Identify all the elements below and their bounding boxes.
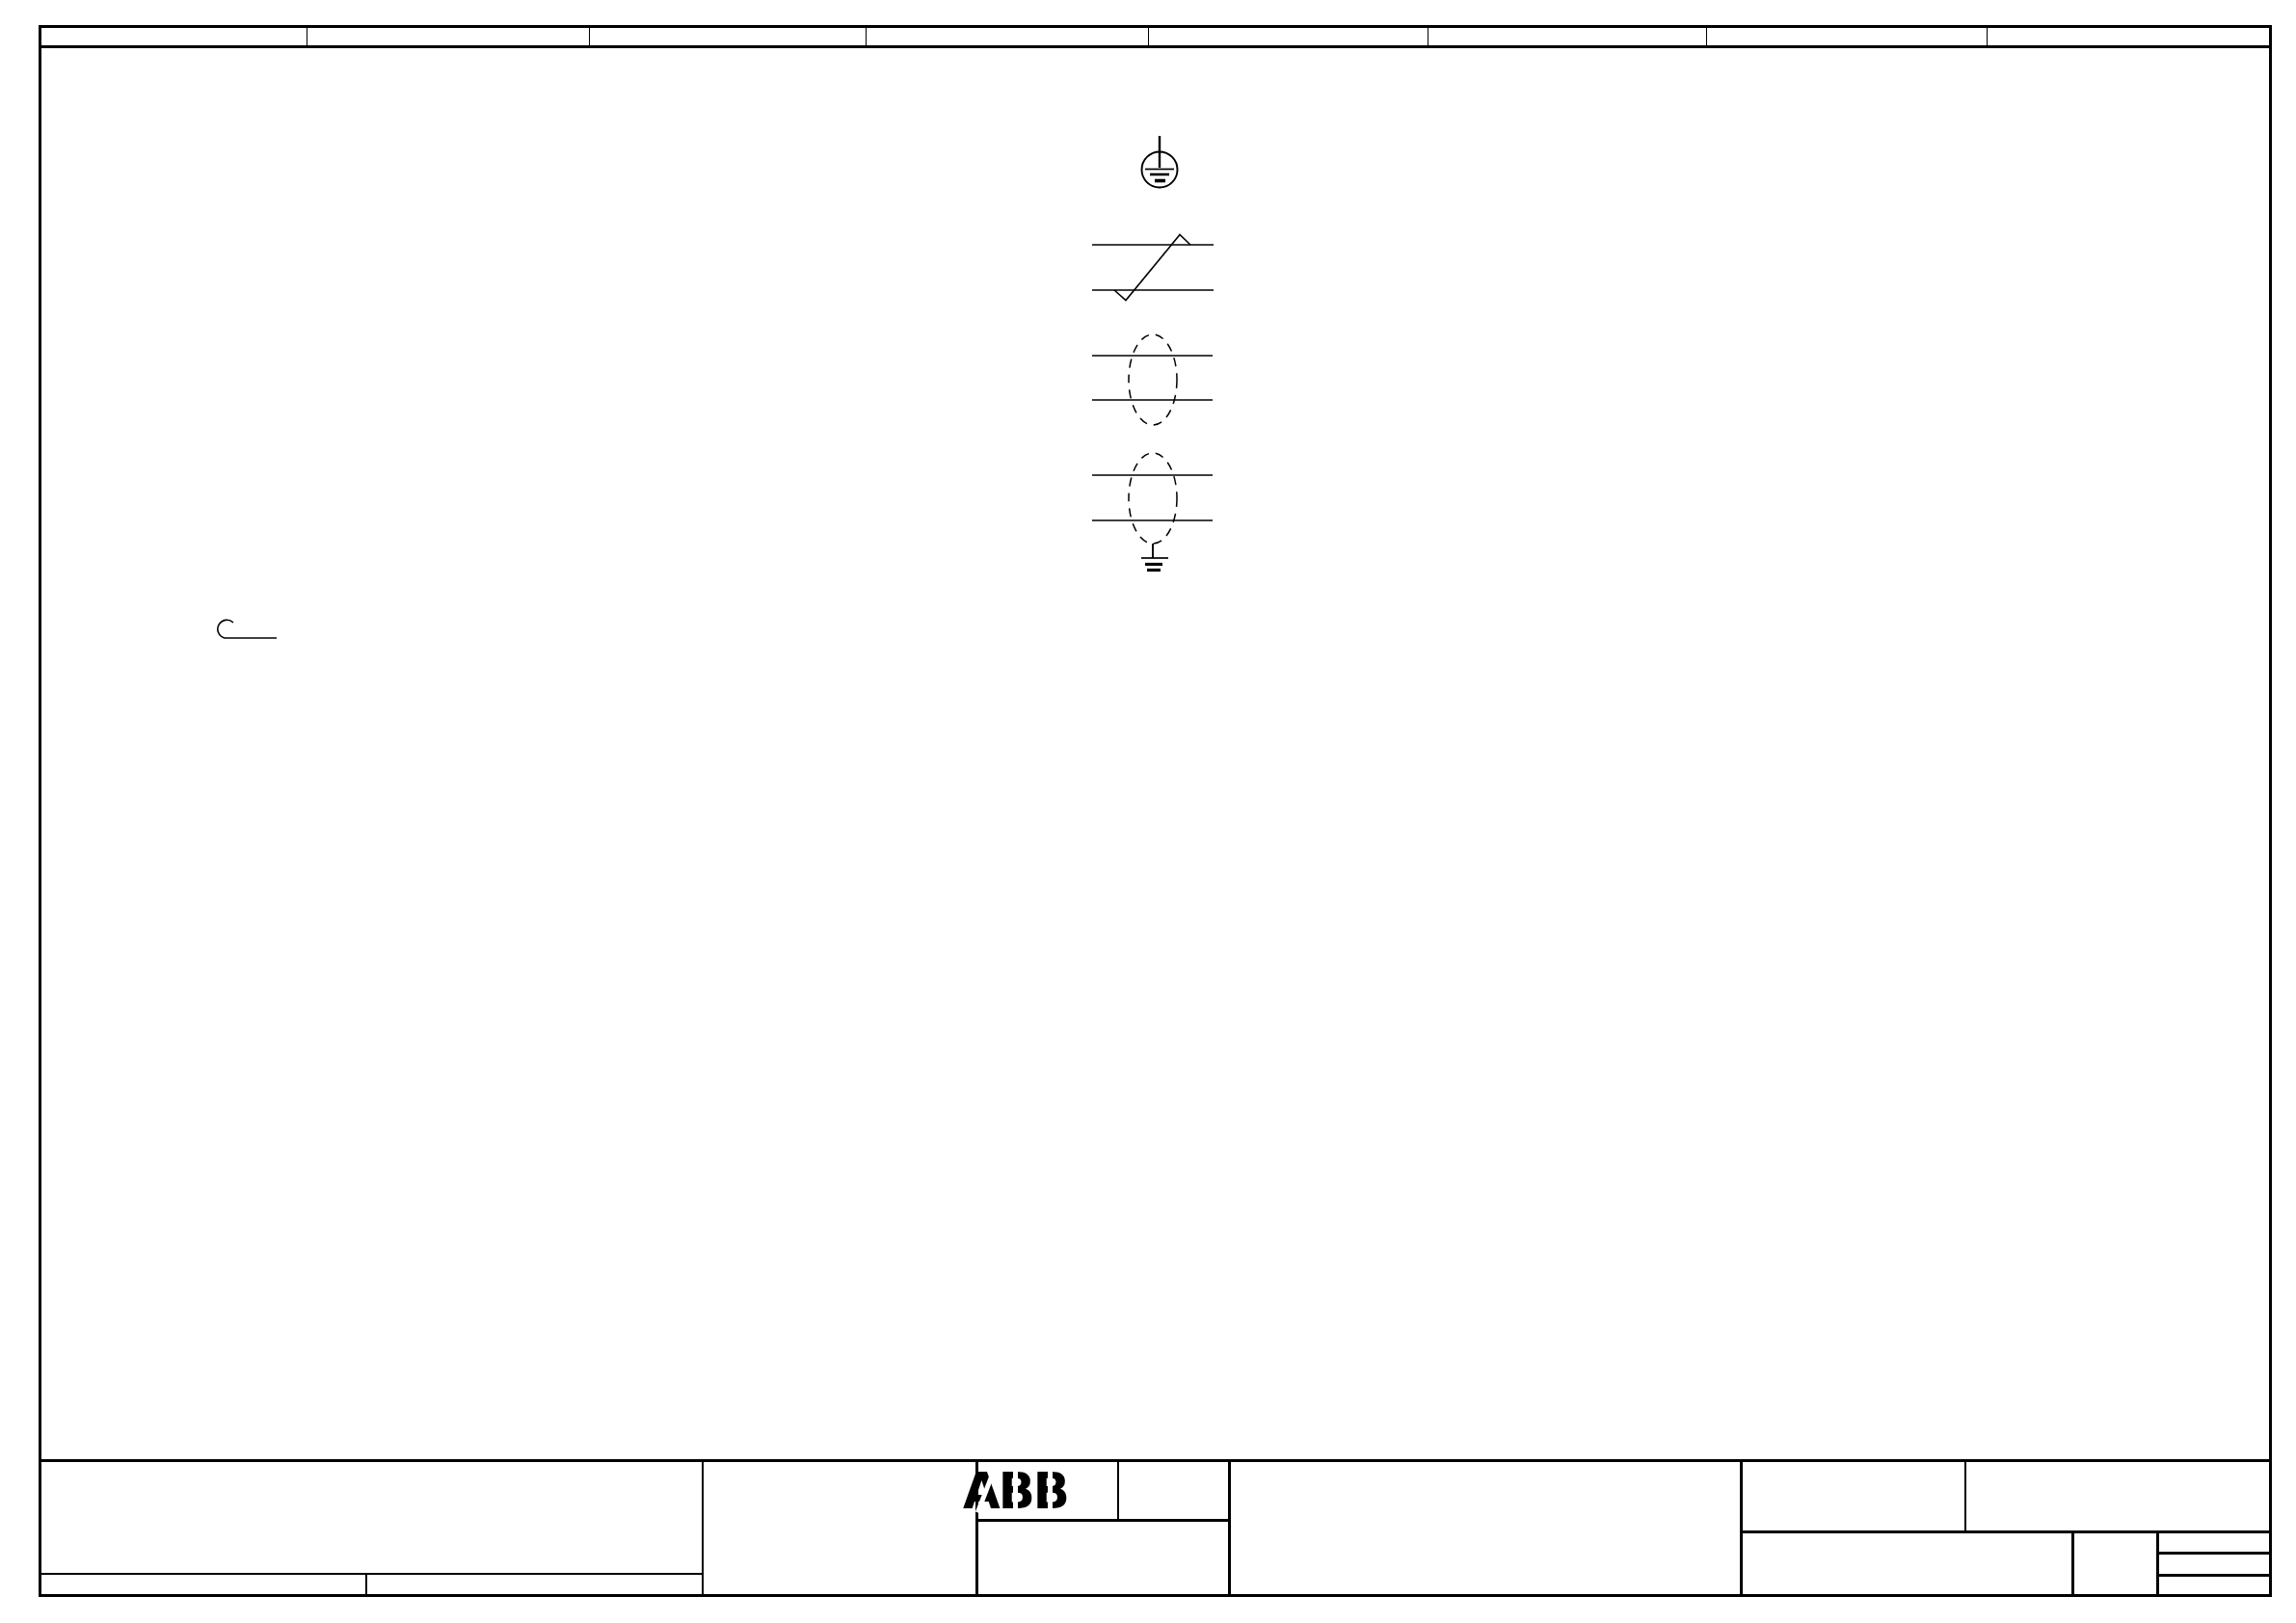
zone-strip (41, 28, 2269, 45)
frame-bottom-border (39, 1594, 2272, 1597)
titleblock-right-stack-row-1 (2159, 1533, 2269, 1552)
shielded-pair-earthed-icon (1092, 453, 1213, 571)
titleblock-center-field (1231, 1462, 1740, 1594)
titleblock-below-logo-field (978, 1522, 1228, 1594)
shielded-pair-icon (1092, 334, 1213, 425)
zone-strip-divider (1706, 28, 1707, 45)
symbols-layer (0, 0, 2296, 1623)
conductor-transposition-icon (1092, 235, 1214, 301)
titleblock-right-stack-row-3 (2159, 1577, 2269, 1594)
titleblock-logo-right-field (1119, 1462, 1228, 1519)
titleblock-right-bottom-main-field (1743, 1533, 2071, 1594)
frame-left-border (39, 25, 41, 1597)
titleblock-left-sub-field-1 (41, 1575, 365, 1594)
titleblock-right-stack-row-2 (2159, 1555, 2269, 1574)
zone-strip-divider (1428, 28, 1428, 45)
abb-logo-slit (1013, 1470, 1018, 1514)
zone-strip-divider (866, 28, 867, 45)
titleblock-right-top-left-field (1743, 1462, 1964, 1530)
titleblock-right-bottom-small-field (2074, 1533, 2156, 1594)
abb-logo: ABB (963, 1468, 1098, 1518)
zone-strip-divider (589, 28, 590, 45)
zone-strip-divider (1148, 28, 1149, 45)
zone-strip-bottom-border (39, 45, 2272, 48)
zone-strip-divider (307, 28, 307, 45)
abb-logo-slit (1048, 1470, 1053, 1514)
titleblock-right-top-right-field (1966, 1462, 2269, 1530)
frame-right-border (2269, 25, 2272, 1597)
titleblock-left-sub-field-2 (367, 1575, 702, 1594)
schematic-sheet: ABB (0, 0, 2296, 1623)
hook-icon (218, 620, 277, 638)
titleblock-left-field (41, 1462, 702, 1573)
protective-earth-circle-icon (1142, 136, 1178, 188)
titleblock-middle-field (704, 1462, 975, 1594)
zone-strip-divider (1987, 28, 1988, 45)
